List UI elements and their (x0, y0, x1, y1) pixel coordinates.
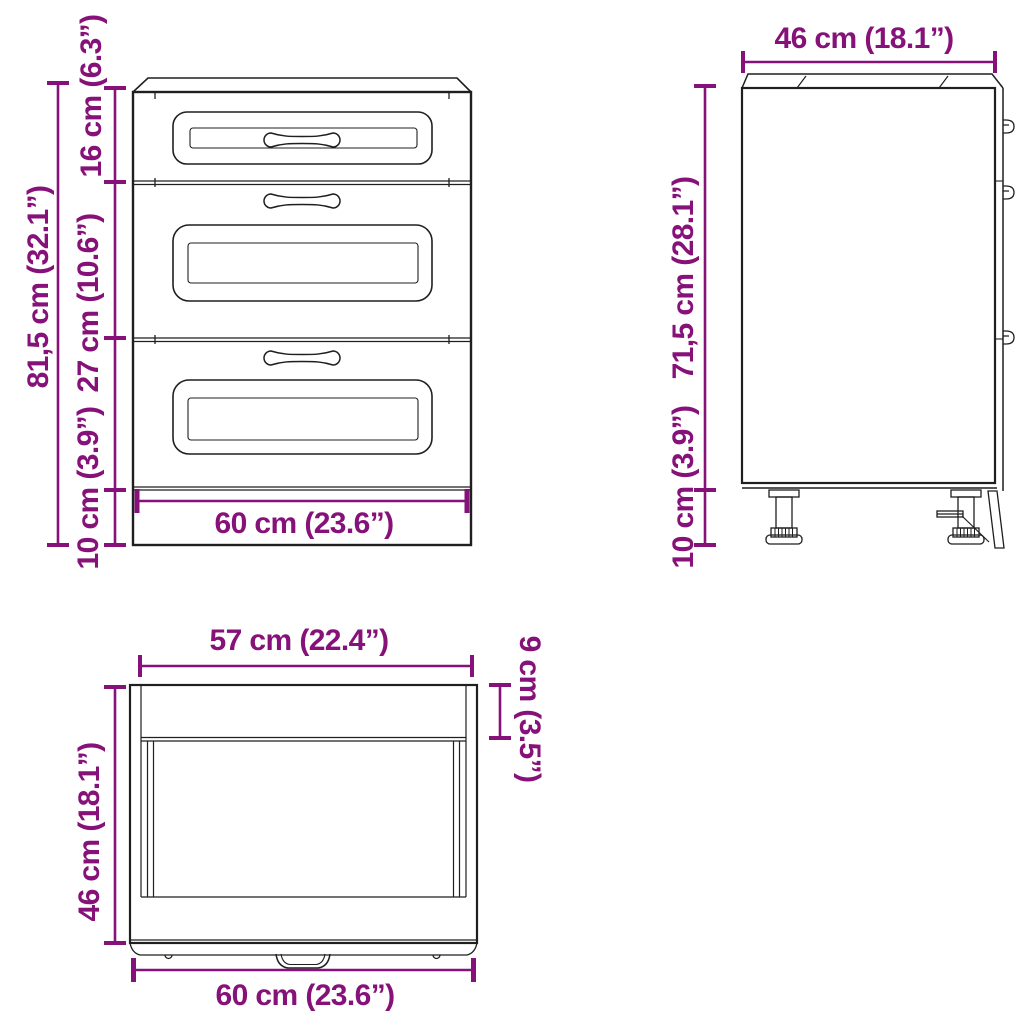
side-handle-icons (1003, 120, 1014, 344)
top-view-drawing (104, 655, 511, 982)
top-depth-label: 46 cm (18.1”) (73, 743, 107, 922)
top-handle-icon (276, 954, 330, 968)
drawer-handle-icon (264, 133, 340, 147)
side-body-height-label: 71,5 cm (28.1”) (667, 177, 701, 380)
top-strip-dimension (489, 683, 511, 740)
dimension-diagram: 81,5 cm (32.1”) 16 cm (6.3”) 27 cm (10.6… (0, 0, 1024, 1024)
front-middle-drawer-label: 27 cm (10.6”) (72, 214, 106, 393)
side-view-drawing (694, 51, 1014, 548)
front-view-drawing (47, 78, 471, 547)
drawer-front-3 (173, 351, 432, 454)
front-total-height-label: 81,5 cm (32.1”) (22, 186, 56, 389)
drawer-front-2 (173, 194, 432, 301)
drawer-dividers (133, 92, 471, 490)
top-strip-depth-label: 9 cm (3.5”) (512, 636, 546, 783)
top-depth-dimension (104, 685, 126, 945)
cabinet-top-outline (130, 685, 477, 943)
plinth-board (988, 491, 1004, 548)
side-depth-label: 46 cm (18.1”) (775, 22, 954, 56)
cabinet-body (133, 92, 471, 545)
drawer-front-panel-edge (995, 88, 1003, 491)
worktop-edge (133, 78, 471, 92)
front-width-label: 60 cm (23.6”) (215, 507, 394, 541)
adjustable-foot (766, 490, 802, 544)
drawer-handle-icon (264, 351, 340, 365)
cabinet-side-body (742, 88, 995, 483)
drawer-handle-icon (264, 194, 340, 208)
front-leg-height-label: 10 cm (3.9”) (72, 407, 106, 570)
top-inner-lines (130, 685, 477, 940)
top-width-label: 60 cm (23.6”) (216, 979, 395, 1013)
side-leg-height-label: 10 cm (3.9”) (667, 406, 701, 569)
top-inner-width-label: 57 cm (22.4”) (210, 624, 389, 658)
door-front-strip (130, 943, 477, 959)
top-inner-width-dimension (138, 655, 474, 677)
worktop-edge (742, 74, 1003, 88)
front-top-drawer-label: 16 cm (6.3”) (75, 15, 109, 178)
adjustable-foot-with-plinth (937, 490, 1004, 548)
drawer-front-1 (173, 112, 432, 164)
cabinet-line-art (0, 0, 1024, 1024)
